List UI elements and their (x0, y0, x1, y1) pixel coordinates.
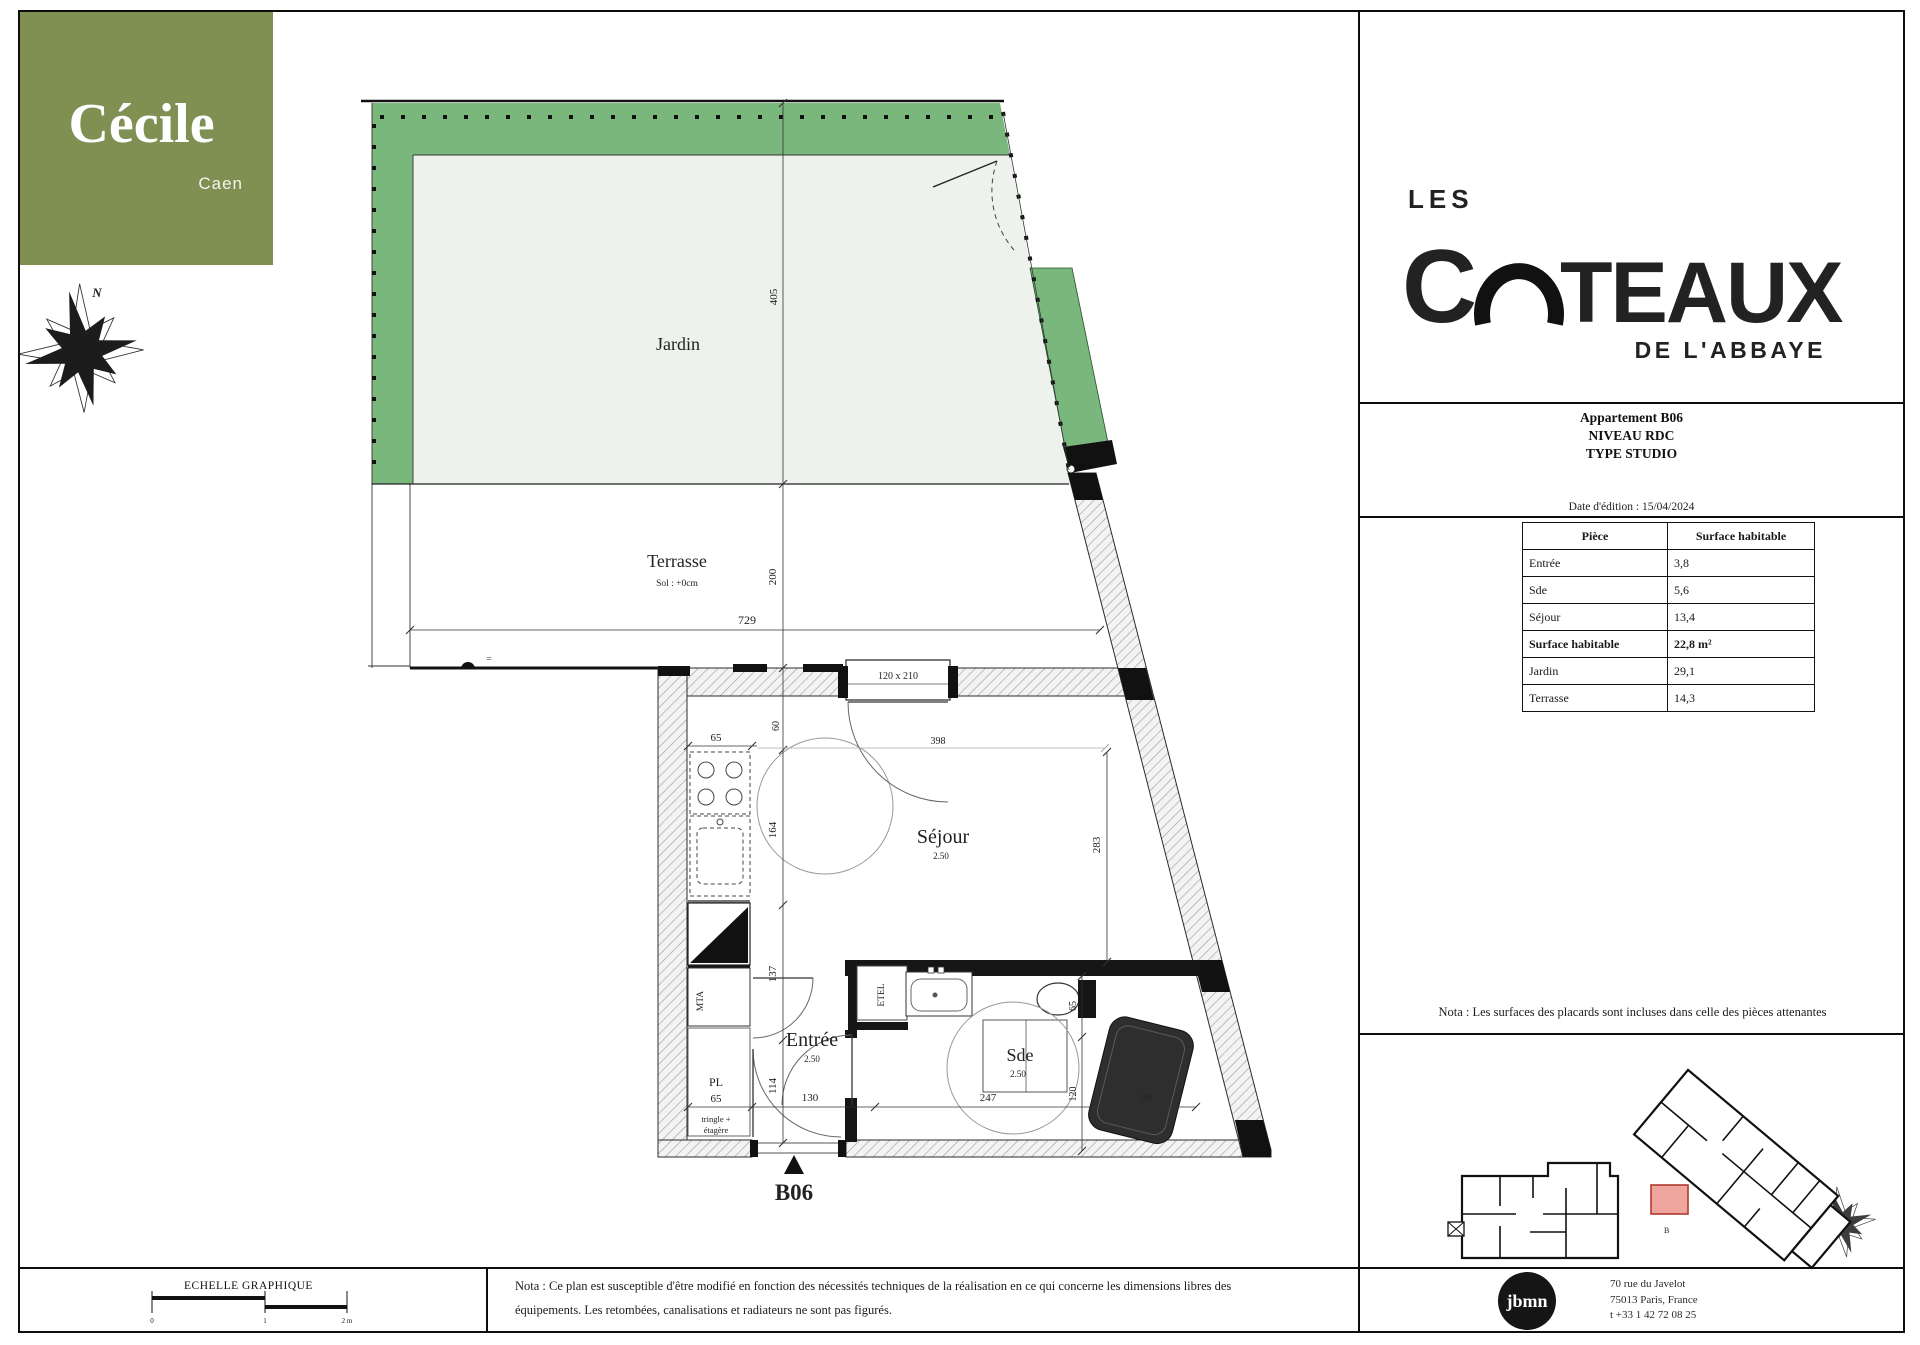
apartment-title: Appartement B06 (1358, 409, 1905, 427)
coteaux-logo: LES C TEAUX DE L'ABBAYE (1402, 170, 1854, 370)
plan-disclaimer-line2: équipements. Les retombées, canalisation… (515, 1303, 1355, 1318)
agency-address-line1: 70 rue du Javelot (1610, 1277, 1698, 1293)
cell-value: 3,8 (1668, 550, 1815, 577)
cell-value: 29,1 (1668, 658, 1815, 685)
divider-footer (18, 1267, 1905, 1269)
table-header-row: Pièce Surface habitable (1523, 523, 1815, 550)
divider-table-siteplan (1358, 1033, 1905, 1035)
jbmn-logo: jbmn (1498, 1272, 1556, 1330)
apartment-type: TYPE STUDIO (1358, 445, 1905, 463)
cell-value: 13,4 (1668, 604, 1815, 631)
table-row: Sde 5,6 (1523, 577, 1815, 604)
agency-address-line2: 75013 Paris, France (1610, 1293, 1698, 1309)
cell-piece: Sde (1523, 577, 1668, 604)
panel-divider (1358, 10, 1360, 1333)
cell-piece: Surface habitable (1523, 631, 1668, 658)
apartment-level: NIVEAU RDC (1358, 427, 1905, 445)
cell-value: 14,3 (1668, 685, 1815, 712)
apartment-title-block: Appartement B06 NIVEAU RDC TYPE STUDIO (1358, 409, 1905, 463)
agency-address: 70 rue du Javelot 75013 Paris, France t … (1610, 1277, 1698, 1324)
surface-table: Pièce Surface habitable Entrée 3,8 Sde 5… (1522, 522, 1815, 712)
cell-piece: Terrasse (1523, 685, 1668, 712)
closets-note: Nota : Les surfaces des placards sont in… (1365, 1005, 1900, 1020)
coteaux-c: C (1402, 229, 1477, 345)
table-row-total: Surface habitable 22,8 m² (1523, 631, 1815, 658)
plan-sheet: 120 x 210 MTA PL tringle + étagère (0, 0, 1920, 1345)
edition-date: Date d'édition : 15/04/2024 (1358, 501, 1905, 513)
col-header-surface: Surface habitable (1668, 523, 1815, 550)
jbmn-logo-text: jbmn (1506, 1291, 1547, 1312)
cell-value: 5,6 (1668, 577, 1815, 604)
coteaux-teaux: TEAUX (1560, 245, 1843, 341)
table-row: Entrée 3,8 (1523, 550, 1815, 577)
plan-disclaimer-line1: Nota : Ce plan est susceptible d'être mo… (515, 1279, 1355, 1294)
cell-piece: Jardin (1523, 658, 1668, 685)
table-row: Jardin 29,1 (1523, 658, 1815, 685)
divider-title-table (1358, 516, 1905, 518)
cell-piece: Séjour (1523, 604, 1668, 631)
cell-piece: Entrée (1523, 550, 1668, 577)
agency-address-line3: t +33 1 42 72 08 25 (1610, 1308, 1698, 1324)
col-header-piece: Pièce (1523, 523, 1668, 550)
footer-cell-divider (486, 1267, 488, 1333)
cecile-logo: Cécile Caen (20, 12, 273, 265)
plan-disclaimer: Nota : Ce plan est susceptible d'être mo… (515, 1279, 1355, 1327)
cecile-logo-city: Caen (198, 174, 243, 194)
coteaux-les: LES (1408, 184, 1474, 214)
table-row: Séjour 13,4 (1523, 604, 1815, 631)
divider-logo-title (1358, 402, 1905, 404)
coteaux-sub: DE L'ABBAYE (1635, 337, 1826, 363)
coteaux-horseshoe-icon (1482, 271, 1556, 324)
table-row: Terrasse 14,3 (1523, 685, 1815, 712)
cecile-logo-name: Cécile (20, 92, 263, 156)
cell-value: 22,8 m² (1668, 631, 1815, 658)
scale-label: ECHELLE GRAPHIQUE (126, 1280, 371, 1292)
